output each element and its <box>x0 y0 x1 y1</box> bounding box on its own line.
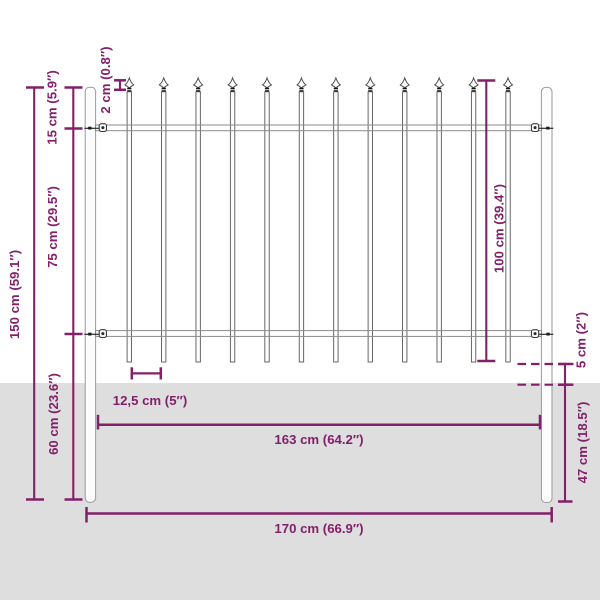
svg-text:163 cm (64.2″): 163 cm (64.2″) <box>274 432 363 447</box>
svg-text:100 cm (39.4″): 100 cm (39.4″) <box>492 184 507 273</box>
svg-text:150 cm (59.1″): 150 cm (59.1″) <box>7 250 22 339</box>
svg-text:12,5 cm (5″): 12,5 cm (5″) <box>113 393 188 408</box>
svg-text:15 cm (5.9″): 15 cm (5.9″) <box>45 70 60 145</box>
svg-text:2 cm (0.8″): 2 cm (0.8″) <box>98 46 113 113</box>
svg-text:170 cm (66.9″): 170 cm (66.9″) <box>274 521 363 536</box>
svg-text:60 cm (23.6″): 60 cm (23.6″) <box>46 373 61 455</box>
svg-text:47 cm (18.5″): 47 cm (18.5″) <box>575 402 590 484</box>
svg-text:75 cm (29.5″): 75 cm (29.5″) <box>45 186 60 268</box>
svg-text:5 cm (2″): 5 cm (2″) <box>574 312 589 368</box>
